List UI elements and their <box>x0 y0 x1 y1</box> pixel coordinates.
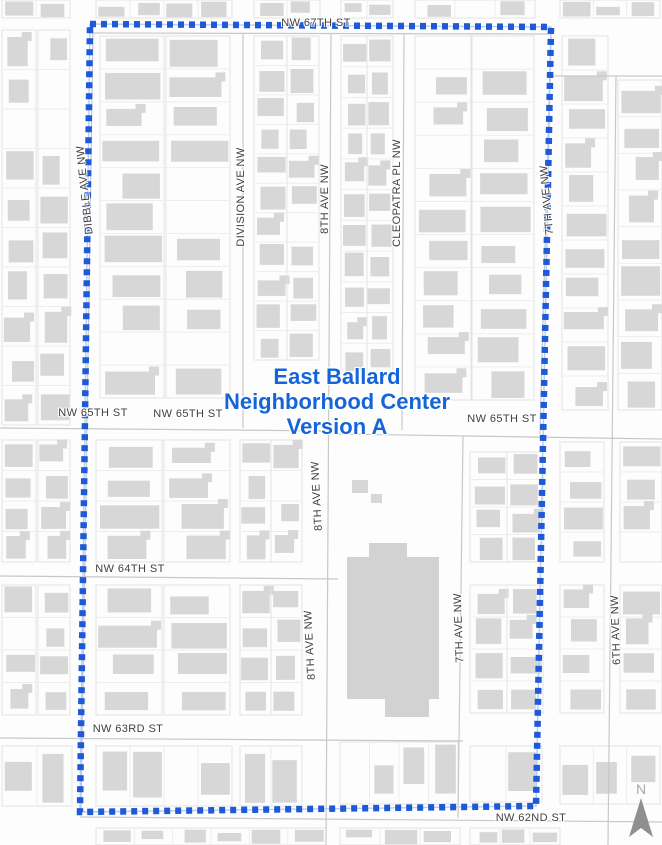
building-footprint <box>480 207 530 232</box>
building-footprint <box>279 275 289 284</box>
building-footprint <box>261 41 283 60</box>
street-line <box>80 817 662 822</box>
building-footprint <box>241 507 265 523</box>
building-footprint <box>245 754 265 803</box>
building-footprint <box>598 307 608 316</box>
street-label: 6TH AVE NW <box>609 595 623 665</box>
building-footprint <box>260 3 283 16</box>
building-footprint <box>567 214 607 237</box>
building-footprint <box>133 752 162 798</box>
building-footprint <box>106 39 159 62</box>
street-label: NW 63RD ST <box>93 723 164 735</box>
building-footprint <box>103 830 130 842</box>
building-footprint <box>273 591 298 607</box>
building-footprint <box>46 628 64 646</box>
building-footprint <box>624 653 655 672</box>
building-footprint <box>181 504 223 529</box>
building-footprint <box>419 210 466 233</box>
building-footprint <box>564 508 603 530</box>
building-footprint <box>274 213 284 222</box>
building-footprint <box>624 129 659 148</box>
building-footprint <box>50 38 67 60</box>
street-line <box>0 738 463 741</box>
building-footprint <box>264 586 274 595</box>
building-footprint <box>261 339 279 358</box>
building-footprint <box>142 831 164 839</box>
building-footprint <box>6 509 28 529</box>
building-footprint <box>257 304 280 327</box>
building-footprint <box>380 160 390 169</box>
building-footprint <box>508 752 536 791</box>
building-footprint <box>623 592 660 615</box>
building-footprint <box>566 278 599 297</box>
building-footprint <box>291 304 317 321</box>
building-footprint <box>7 37 27 66</box>
building-footprint <box>653 152 662 161</box>
building-footprint <box>309 156 319 165</box>
building-footprint <box>628 381 655 407</box>
building-footprint <box>569 109 605 129</box>
building-footprint <box>260 244 284 265</box>
building-footprint <box>478 337 519 362</box>
building-footprint <box>571 619 597 641</box>
building-footprint <box>178 653 227 674</box>
building-footprint <box>171 623 226 649</box>
building-footprint <box>460 169 470 178</box>
building-footprint <box>44 274 68 298</box>
building-footprint <box>220 531 230 540</box>
building-footprint <box>290 130 307 149</box>
building-footprint <box>368 102 389 125</box>
building-footprint <box>186 271 222 298</box>
building-footprint <box>655 86 662 95</box>
building-footprint <box>45 593 69 613</box>
north-arrow-label: N <box>636 781 646 797</box>
neighborhood-map: NW 67TH STNW 65TH STNW 65TH STNW 65TH ST… <box>0 0 662 845</box>
building-footprint <box>644 501 654 510</box>
building-footprint <box>292 38 311 61</box>
north-arrow: N <box>620 772 662 844</box>
building-footprint <box>218 499 228 508</box>
building-footprint <box>105 236 162 263</box>
building-footprint <box>511 690 536 710</box>
building-footprint <box>374 765 393 793</box>
building-footprint <box>368 288 390 304</box>
building-footprint <box>113 655 154 674</box>
building-footprint <box>372 72 388 94</box>
building-footprint <box>533 833 557 843</box>
building-footprint <box>40 354 64 376</box>
building-footprint <box>480 538 503 560</box>
building-footprint <box>40 197 67 224</box>
building-footprint <box>45 312 68 343</box>
building-footprint <box>596 762 617 794</box>
building-footprint <box>435 745 456 794</box>
building-footprint <box>113 275 161 297</box>
building-footprint <box>569 175 593 202</box>
building-footprint <box>22 394 32 403</box>
building-footprint <box>563 655 590 673</box>
building-footprint <box>427 5 451 17</box>
building-footprint <box>459 332 469 341</box>
building-footprint <box>259 71 284 92</box>
street-label: NW 65TH ST <box>153 408 222 420</box>
building-footprint <box>22 32 32 41</box>
building-footprint <box>277 620 300 642</box>
building-footprint <box>500 1 524 15</box>
building-footprint <box>9 80 29 103</box>
building-footprint <box>43 232 68 258</box>
building-footprint <box>385 699 429 717</box>
building-footprint <box>57 440 67 449</box>
building-footprint <box>478 690 503 709</box>
building-footprint <box>8 271 27 299</box>
building-footprint <box>369 5 390 15</box>
building-footprint <box>185 830 206 843</box>
building-footprint <box>291 1 310 12</box>
building-footprint <box>621 266 660 296</box>
building-footprint <box>105 692 148 710</box>
building-footprint <box>564 312 604 329</box>
street-label: NW 62ND ST <box>496 812 567 824</box>
building-footprint <box>648 191 658 200</box>
building-footprint <box>103 752 127 791</box>
building-footprint <box>348 75 365 94</box>
building-footprint <box>105 73 160 99</box>
building-footprint <box>597 382 607 391</box>
building-footprint <box>513 538 535 561</box>
building-footprint <box>568 346 606 370</box>
building-footprint <box>98 7 124 17</box>
north-arrow-dart <box>629 798 653 837</box>
building-footprint <box>42 754 63 803</box>
building-footprint <box>295 830 324 842</box>
building-footprint <box>102 141 159 162</box>
building-footprint <box>484 139 518 162</box>
building-footprint <box>403 747 424 784</box>
building-footprint <box>510 484 538 505</box>
building-footprint <box>24 313 34 322</box>
street-line <box>326 34 331 845</box>
building-footprint <box>292 186 317 204</box>
building-footprint <box>40 656 68 674</box>
street-label: NW 65TH ST <box>467 413 536 425</box>
building-footprint <box>369 40 390 62</box>
building-footprint <box>629 196 654 223</box>
building-footprint <box>151 621 161 630</box>
building-footprint <box>290 334 313 357</box>
building-footprint <box>291 69 314 93</box>
building-footprint <box>123 306 160 331</box>
building-footprint <box>478 457 505 473</box>
building-footprint <box>596 7 620 15</box>
building-footprint <box>345 288 364 307</box>
building-footprint <box>272 760 297 802</box>
building-footprint <box>245 692 266 711</box>
building-footprint <box>369 543 407 557</box>
building-footprint <box>260 187 285 210</box>
building-footprint <box>477 510 500 527</box>
building-footprint <box>108 481 150 497</box>
building-footprint <box>218 833 242 841</box>
building-footprint <box>8 200 30 221</box>
building-footprint <box>9 240 34 262</box>
building-footprint <box>20 531 30 540</box>
building-footprint <box>480 832 498 842</box>
building-footprint <box>527 615 537 624</box>
building-footprint <box>166 3 192 17</box>
building-footprint <box>563 2 591 17</box>
building-footprint <box>343 225 366 246</box>
street-line <box>92 33 549 34</box>
building-footprint <box>273 692 294 711</box>
building-footprint <box>487 108 528 131</box>
building-footprint <box>4 587 32 613</box>
building-footprint <box>436 77 467 94</box>
map-title: East Ballard Neighborhood Center Version… <box>224 364 450 439</box>
building-footprint <box>502 829 525 842</box>
building-footprint <box>457 102 467 111</box>
building-footprint <box>276 656 295 680</box>
building-footprint <box>170 40 218 67</box>
building-footprint <box>187 310 220 330</box>
building-footprint <box>369 194 390 211</box>
building-footprint <box>138 3 160 15</box>
street-line <box>0 576 338 579</box>
street-label: DIVISION AVE NW <box>235 147 247 246</box>
building-footprint <box>170 596 208 614</box>
building-footprint <box>257 157 285 173</box>
building-footprint <box>60 502 70 511</box>
building-footprint <box>100 505 159 528</box>
street-label: 7TH AVE NW <box>452 593 466 663</box>
street-label: 8TH AVE NW <box>319 164 331 234</box>
building-footprint <box>475 487 505 505</box>
building-footprint <box>348 133 362 154</box>
building-footprint <box>201 763 230 795</box>
building-footprint <box>481 246 515 263</box>
street-label: CLEOPATRA PL NW <box>391 139 403 247</box>
building-footprint <box>476 653 503 678</box>
building-footprint <box>140 531 150 540</box>
building-footprint <box>297 103 314 122</box>
building-footprint <box>136 104 146 113</box>
building-footprint <box>424 831 451 842</box>
building-footprint <box>201 2 226 17</box>
building-footprint <box>60 531 70 540</box>
building-footprint <box>632 2 655 16</box>
building-footprint <box>177 239 220 260</box>
building-footprint <box>562 765 588 795</box>
building-footprint <box>5 762 32 791</box>
building-footprint <box>352 480 368 493</box>
building-footprint <box>5 2 33 16</box>
building-footprint <box>288 530 298 539</box>
building-footprint <box>169 77 221 97</box>
building-footprint <box>346 830 372 838</box>
street-line <box>608 76 616 845</box>
building-footprint <box>570 689 601 709</box>
building-footprint <box>106 203 152 230</box>
building-footprint <box>241 658 268 681</box>
building-footprint <box>41 4 65 17</box>
building-footprint <box>583 584 593 593</box>
building-footprint <box>281 504 299 521</box>
building-footprint <box>243 628 267 647</box>
building-footprint <box>347 557 439 699</box>
building-footprint <box>491 371 524 398</box>
building-footprint <box>345 253 364 276</box>
building-footprint <box>585 138 595 147</box>
building-footprint <box>176 369 222 395</box>
building-footprint <box>622 240 659 259</box>
building-footprint <box>6 655 35 672</box>
building-footprint <box>652 304 662 313</box>
building-footprint <box>257 98 283 116</box>
street-label: NW 65TH ST <box>58 407 127 419</box>
building-footprint <box>43 156 60 185</box>
building-footprint <box>371 225 391 247</box>
building-footprint <box>22 684 32 693</box>
building-footprint <box>623 446 660 466</box>
building-footprint <box>182 692 226 710</box>
building-footprint <box>242 443 270 462</box>
building-footprint <box>291 247 313 266</box>
building-footprint <box>423 305 453 327</box>
building-footprint <box>345 3 362 12</box>
building-footprint <box>46 692 67 710</box>
building-footprint <box>98 626 157 648</box>
building-footprint <box>293 440 303 449</box>
building-footprint <box>570 482 601 499</box>
building-footprint <box>489 275 521 294</box>
building-footprint <box>372 316 387 339</box>
building-footprint <box>202 473 212 482</box>
building-footprint <box>370 257 389 276</box>
building-footprint <box>61 307 71 316</box>
building-footprint <box>627 480 655 500</box>
building-footprint <box>424 271 458 295</box>
building-footprint <box>626 689 656 709</box>
street-label: NW 64TH ST <box>95 563 164 575</box>
street-label: NW 67TH ST <box>281 17 350 29</box>
building-footprint <box>348 104 365 126</box>
building-footprint <box>249 476 266 499</box>
building-footprint <box>149 366 159 375</box>
building-footprint <box>215 72 225 81</box>
building-footprint <box>480 173 527 194</box>
building-footprint <box>456 368 466 377</box>
building-footprint <box>293 278 313 299</box>
building-footprint <box>513 589 537 614</box>
building-footprint <box>371 494 382 503</box>
building-footprint <box>481 309 527 329</box>
building-footprint <box>261 130 278 149</box>
building-footprint <box>642 613 652 622</box>
building-footprint <box>476 618 501 644</box>
building-footprint <box>109 447 153 468</box>
building-footprint <box>621 342 652 369</box>
building-footprint <box>108 588 151 612</box>
building-footprint <box>429 241 467 260</box>
building-footprint <box>174 107 217 126</box>
building-footprint <box>385 830 417 844</box>
building-footprint <box>122 174 159 199</box>
building-footprint <box>483 71 527 95</box>
building-footprint <box>565 451 591 467</box>
building-footprint <box>5 478 30 497</box>
building-footprint <box>260 530 270 539</box>
building-footprint <box>514 454 538 474</box>
building-footprint <box>171 141 228 162</box>
building-footprint <box>343 44 366 62</box>
map-title-line-1: East Ballard <box>224 364 450 389</box>
building-footprint <box>371 133 385 154</box>
map-title-line-3: Version A <box>224 414 450 439</box>
building-footprint <box>5 444 33 467</box>
building-footprint <box>46 476 68 499</box>
building-footprint <box>6 151 34 179</box>
building-footprint <box>565 249 604 268</box>
building-footprint <box>344 194 365 217</box>
building-footprint <box>12 361 34 382</box>
building-footprint <box>568 39 595 66</box>
building-footprint <box>105 371 155 394</box>
building-footprint <box>573 541 601 556</box>
building-footprint <box>205 443 215 452</box>
building-footprint <box>252 830 281 844</box>
building-footprint <box>357 317 367 326</box>
map-title-line-2: Neighborhood Center <box>224 389 450 414</box>
